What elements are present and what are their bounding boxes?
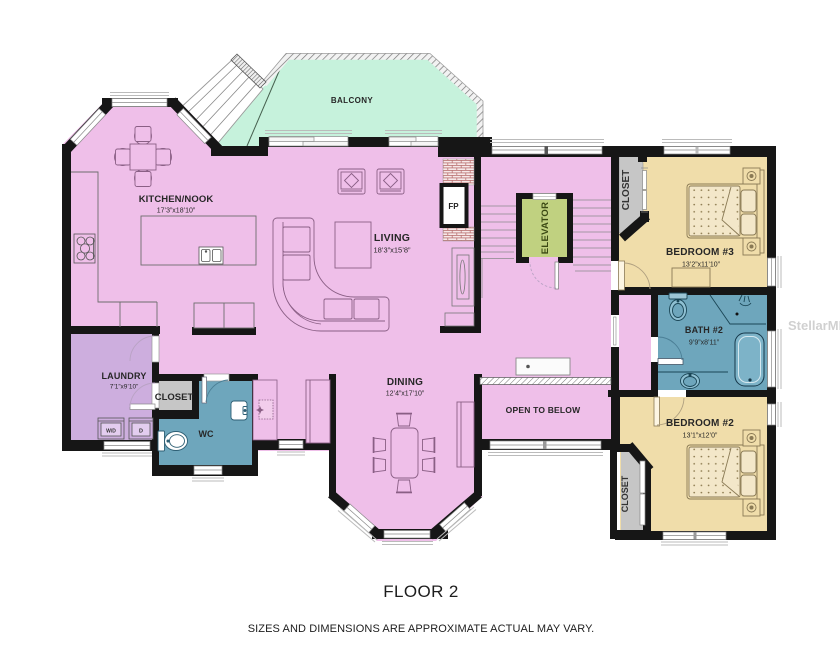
svg-text:17’3”x18’10”: 17’3”x18’10”: [157, 208, 196, 215]
svg-text:D: D: [139, 429, 143, 435]
svg-text:LAUNDRY: LAUNDRY: [101, 371, 146, 381]
svg-text:WC: WC: [199, 429, 214, 439]
svg-text:CLOSET: CLOSET: [620, 475, 630, 512]
svg-text:W/D: W/D: [106, 429, 116, 435]
svg-text:DINING: DINING: [387, 377, 423, 388]
svg-text:SIZES AND DIMENSIONS ARE APPRO: SIZES AND DIMENSIONS ARE APPROXIMATE ACT…: [248, 623, 595, 635]
svg-text:13’2”x11’10”: 13’2”x11’10”: [682, 262, 721, 269]
svg-text:BEDROOM #3: BEDROOM #3: [666, 247, 734, 258]
svg-text:9’9”x8’11”: 9’9”x8’11”: [689, 340, 720, 347]
svg-text:LIVING: LIVING: [374, 232, 410, 244]
svg-text:CLOSET: CLOSET: [621, 170, 632, 211]
svg-text:OPEN TO BELOW: OPEN TO BELOW: [506, 405, 581, 415]
svg-text:CLOSET: CLOSET: [155, 392, 194, 403]
svg-text:18’3”x15’8”: 18’3”x15’8”: [373, 246, 411, 255]
svg-text:ELEVATOR: ELEVATOR: [540, 202, 551, 255]
svg-text:7’1”x9’10”: 7’1”x9’10”: [110, 384, 139, 391]
svg-text:13’1”x12’0”: 13’1”x12’0”: [683, 433, 718, 440]
svg-text:FLOOR 2: FLOOR 2: [383, 582, 459, 601]
svg-text:BATH #2: BATH #2: [685, 325, 723, 335]
svg-text:BEDROOM #2: BEDROOM #2: [666, 418, 734, 429]
svg-text:FP: FP: [448, 202, 459, 211]
svg-text:StellarMLS: StellarMLS: [788, 318, 840, 333]
svg-text:BALCONY: BALCONY: [331, 96, 374, 105]
svg-text:12’4”x17’10”: 12’4”x17’10”: [386, 391, 425, 398]
svg-text:KITCHEN/NOOK: KITCHEN/NOOK: [139, 194, 214, 205]
